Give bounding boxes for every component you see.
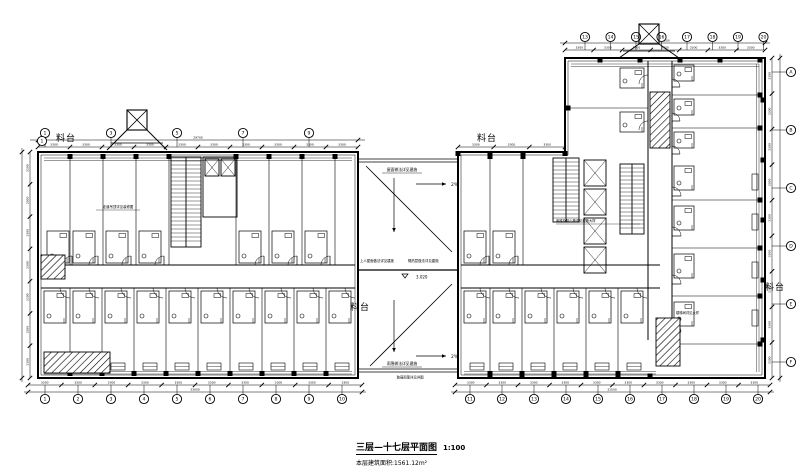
- svg-text:3300: 3300: [543, 143, 551, 147]
- svg-text:上人屋面做法详见建施: 上人屋面做法详见建施: [360, 258, 395, 263]
- svg-text:3300: 3300: [41, 381, 49, 385]
- platform-label-east: 料台: [765, 280, 785, 293]
- svg-text:3300: 3300: [174, 381, 182, 385]
- svg-text:9: 9: [308, 397, 311, 403]
- svg-text:19: 19: [735, 35, 741, 41]
- svg-text:3300: 3300: [719, 381, 727, 385]
- svg-text:8: 8: [275, 397, 278, 403]
- svg-text:3300: 3300: [26, 164, 30, 172]
- svg-text:29700: 29700: [193, 136, 203, 140]
- svg-text:3300: 3300: [26, 293, 30, 301]
- svg-text:3300: 3300: [690, 46, 698, 50]
- svg-text:3300: 3300: [208, 381, 216, 385]
- svg-text:4: 4: [143, 397, 146, 403]
- svg-text:10: 10: [339, 397, 345, 403]
- platform-label-top-left: 料台: [56, 131, 76, 144]
- svg-text:19: 19: [723, 397, 729, 403]
- svg-text:屋面做法详见建施: 屋面做法详见建施: [387, 167, 418, 172]
- left-block: 走道吊顶详见装修图: [38, 152, 358, 378]
- platform-label-right-block: 料台: [477, 131, 497, 144]
- svg-text:电梯及核心筒详见建施大样: 电梯及核心筒详见建施大样: [556, 218, 596, 223]
- svg-text:9: 9: [308, 131, 311, 137]
- svg-text:3300: 3300: [768, 72, 772, 80]
- svg-text:3300: 3300: [768, 321, 772, 329]
- svg-text:15: 15: [633, 35, 639, 41]
- title-block: 三层—十七层平面图1:100 本层建筑面积:1561.12m²: [356, 435, 576, 467]
- svg-text:3300: 3300: [718, 46, 726, 50]
- svg-text:C: C: [789, 186, 792, 192]
- svg-text:楼梯间详见大样: 楼梯间详见大样: [676, 310, 700, 315]
- svg-text:6: 6: [209, 397, 212, 403]
- svg-text:5: 5: [176, 397, 179, 403]
- middle-connector: 2%屋面做法详见建施上人屋面做法详见建施隔热层做法详见建施3.0202%雨篷做法…: [358, 159, 459, 380]
- svg-text:3300: 3300: [241, 381, 249, 385]
- platform-label-middle: 料台: [350, 300, 370, 313]
- svg-text:17: 17: [659, 397, 665, 403]
- svg-text:3300: 3300: [624, 381, 632, 385]
- svg-text:18: 18: [691, 397, 697, 403]
- svg-text:3300: 3300: [768, 143, 772, 151]
- svg-text:隔热层做法详见建施: 隔热层做法详见建施: [408, 258, 439, 263]
- svg-text:15: 15: [595, 397, 601, 403]
- right-block: 电梯及核心筒详见建施大样楼梯间详见大样: [456, 58, 766, 379]
- svg-text:1: 1: [41, 139, 44, 145]
- floor-plan-sheet: 3300330033003300330033003300330033003300…: [0, 0, 800, 475]
- svg-text:7: 7: [242, 397, 245, 403]
- svg-text:3300: 3300: [530, 381, 538, 385]
- svg-text:3.020: 3.020: [416, 275, 428, 280]
- svg-text:3300: 3300: [656, 381, 664, 385]
- svg-text:12: 12: [499, 397, 505, 403]
- svg-text:13: 13: [531, 397, 537, 403]
- svg-text:3300: 3300: [26, 358, 30, 366]
- svg-text:3300: 3300: [341, 381, 349, 385]
- svg-text:13: 13: [582, 35, 588, 41]
- svg-text:3300: 3300: [210, 143, 218, 147]
- svg-text:3300: 3300: [26, 326, 30, 334]
- svg-text:走道吊顶详见装修图: 走道吊顶详见装修图: [103, 204, 134, 209]
- svg-text:7: 7: [242, 131, 245, 137]
- svg-text:3300: 3300: [467, 381, 475, 385]
- drawing-scale: 1:100: [443, 444, 465, 452]
- svg-text:14: 14: [563, 397, 569, 403]
- svg-text:3300: 3300: [74, 381, 82, 385]
- svg-text:3300: 3300: [768, 250, 772, 258]
- svg-text:3300: 3300: [26, 197, 30, 205]
- svg-text:3300: 3300: [26, 229, 30, 237]
- svg-text:3300: 3300: [575, 46, 583, 50]
- svg-text:31500: 31500: [607, 388, 617, 392]
- svg-text:3300: 3300: [768, 179, 772, 187]
- svg-text:3300: 3300: [178, 143, 186, 147]
- tower-crane-right: [619, 24, 679, 58]
- svg-text:E: E: [790, 302, 793, 308]
- svg-text:3: 3: [110, 397, 113, 403]
- svg-text:20: 20: [755, 397, 761, 403]
- svg-text:1: 1: [44, 397, 47, 403]
- svg-text:D: D: [789, 244, 793, 250]
- svg-text:F: F: [790, 360, 793, 366]
- svg-text:3300: 3300: [687, 381, 695, 385]
- svg-text:3300: 3300: [82, 143, 90, 147]
- drawing-title: 三层—十七层平面图: [356, 440, 437, 455]
- svg-text:3300: 3300: [141, 381, 149, 385]
- svg-text:11: 11: [467, 397, 473, 403]
- floor-plan-drawing: 3300330033003300330033003300330033003300…: [0, 0, 800, 475]
- floor-area-note: 本层建筑面积:1561.12m²: [356, 458, 576, 467]
- svg-text:14: 14: [608, 35, 614, 41]
- svg-text:5: 5: [176, 131, 179, 137]
- svg-text:3300: 3300: [768, 356, 772, 364]
- svg-text:3300: 3300: [561, 381, 569, 385]
- svg-text:3300: 3300: [768, 214, 772, 222]
- svg-text:3300: 3300: [26, 261, 30, 269]
- svg-text:3300: 3300: [274, 143, 282, 147]
- svg-text:3300: 3300: [508, 143, 516, 147]
- svg-text:玻璃雨篷详见详图: 玻璃雨篷详见详图: [396, 375, 424, 380]
- svg-text:B: B: [789, 128, 792, 134]
- svg-text:3300: 3300: [338, 143, 346, 147]
- svg-text:16: 16: [627, 397, 633, 403]
- svg-text:3300: 3300: [498, 381, 506, 385]
- svg-text:17: 17: [684, 35, 690, 41]
- svg-text:3300: 3300: [768, 107, 772, 115]
- svg-text:1: 1: [44, 131, 47, 137]
- svg-text:3300: 3300: [308, 381, 316, 385]
- svg-text:3300: 3300: [242, 143, 250, 147]
- svg-text:3300: 3300: [593, 381, 601, 385]
- svg-text:3300: 3300: [108, 381, 116, 385]
- svg-text:3300: 3300: [275, 381, 283, 385]
- svg-text:18: 18: [710, 35, 716, 41]
- svg-text:33000: 33000: [190, 388, 200, 392]
- svg-text:3300: 3300: [750, 381, 758, 385]
- svg-text:3300: 3300: [747, 46, 755, 50]
- svg-text:3: 3: [110, 131, 113, 137]
- svg-text:3300: 3300: [306, 143, 314, 147]
- svg-text:2: 2: [77, 397, 80, 403]
- svg-text:20: 20: [761, 35, 767, 41]
- svg-text:雨篷做法详见建施: 雨篷做法详见建施: [387, 361, 418, 366]
